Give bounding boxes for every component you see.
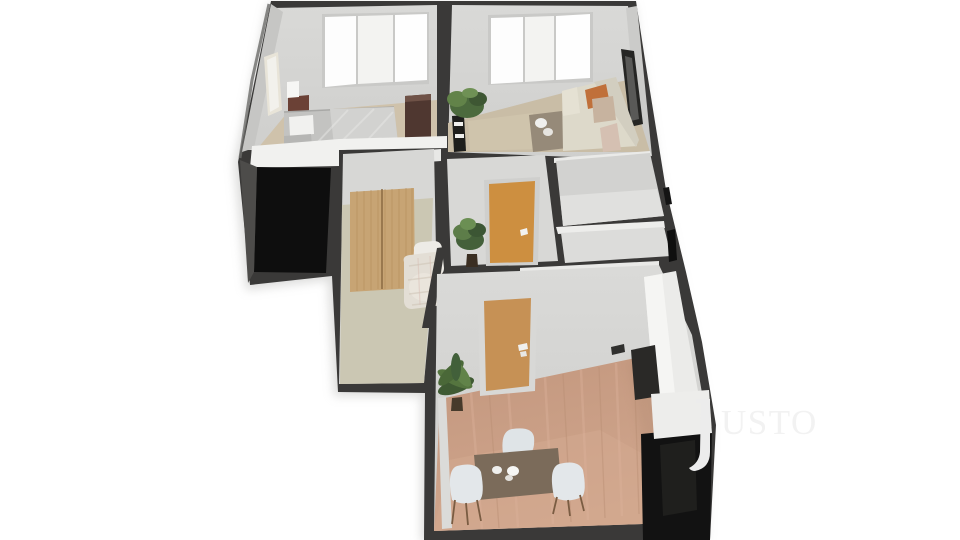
svg-text:USTO: USTO — [721, 403, 818, 442]
